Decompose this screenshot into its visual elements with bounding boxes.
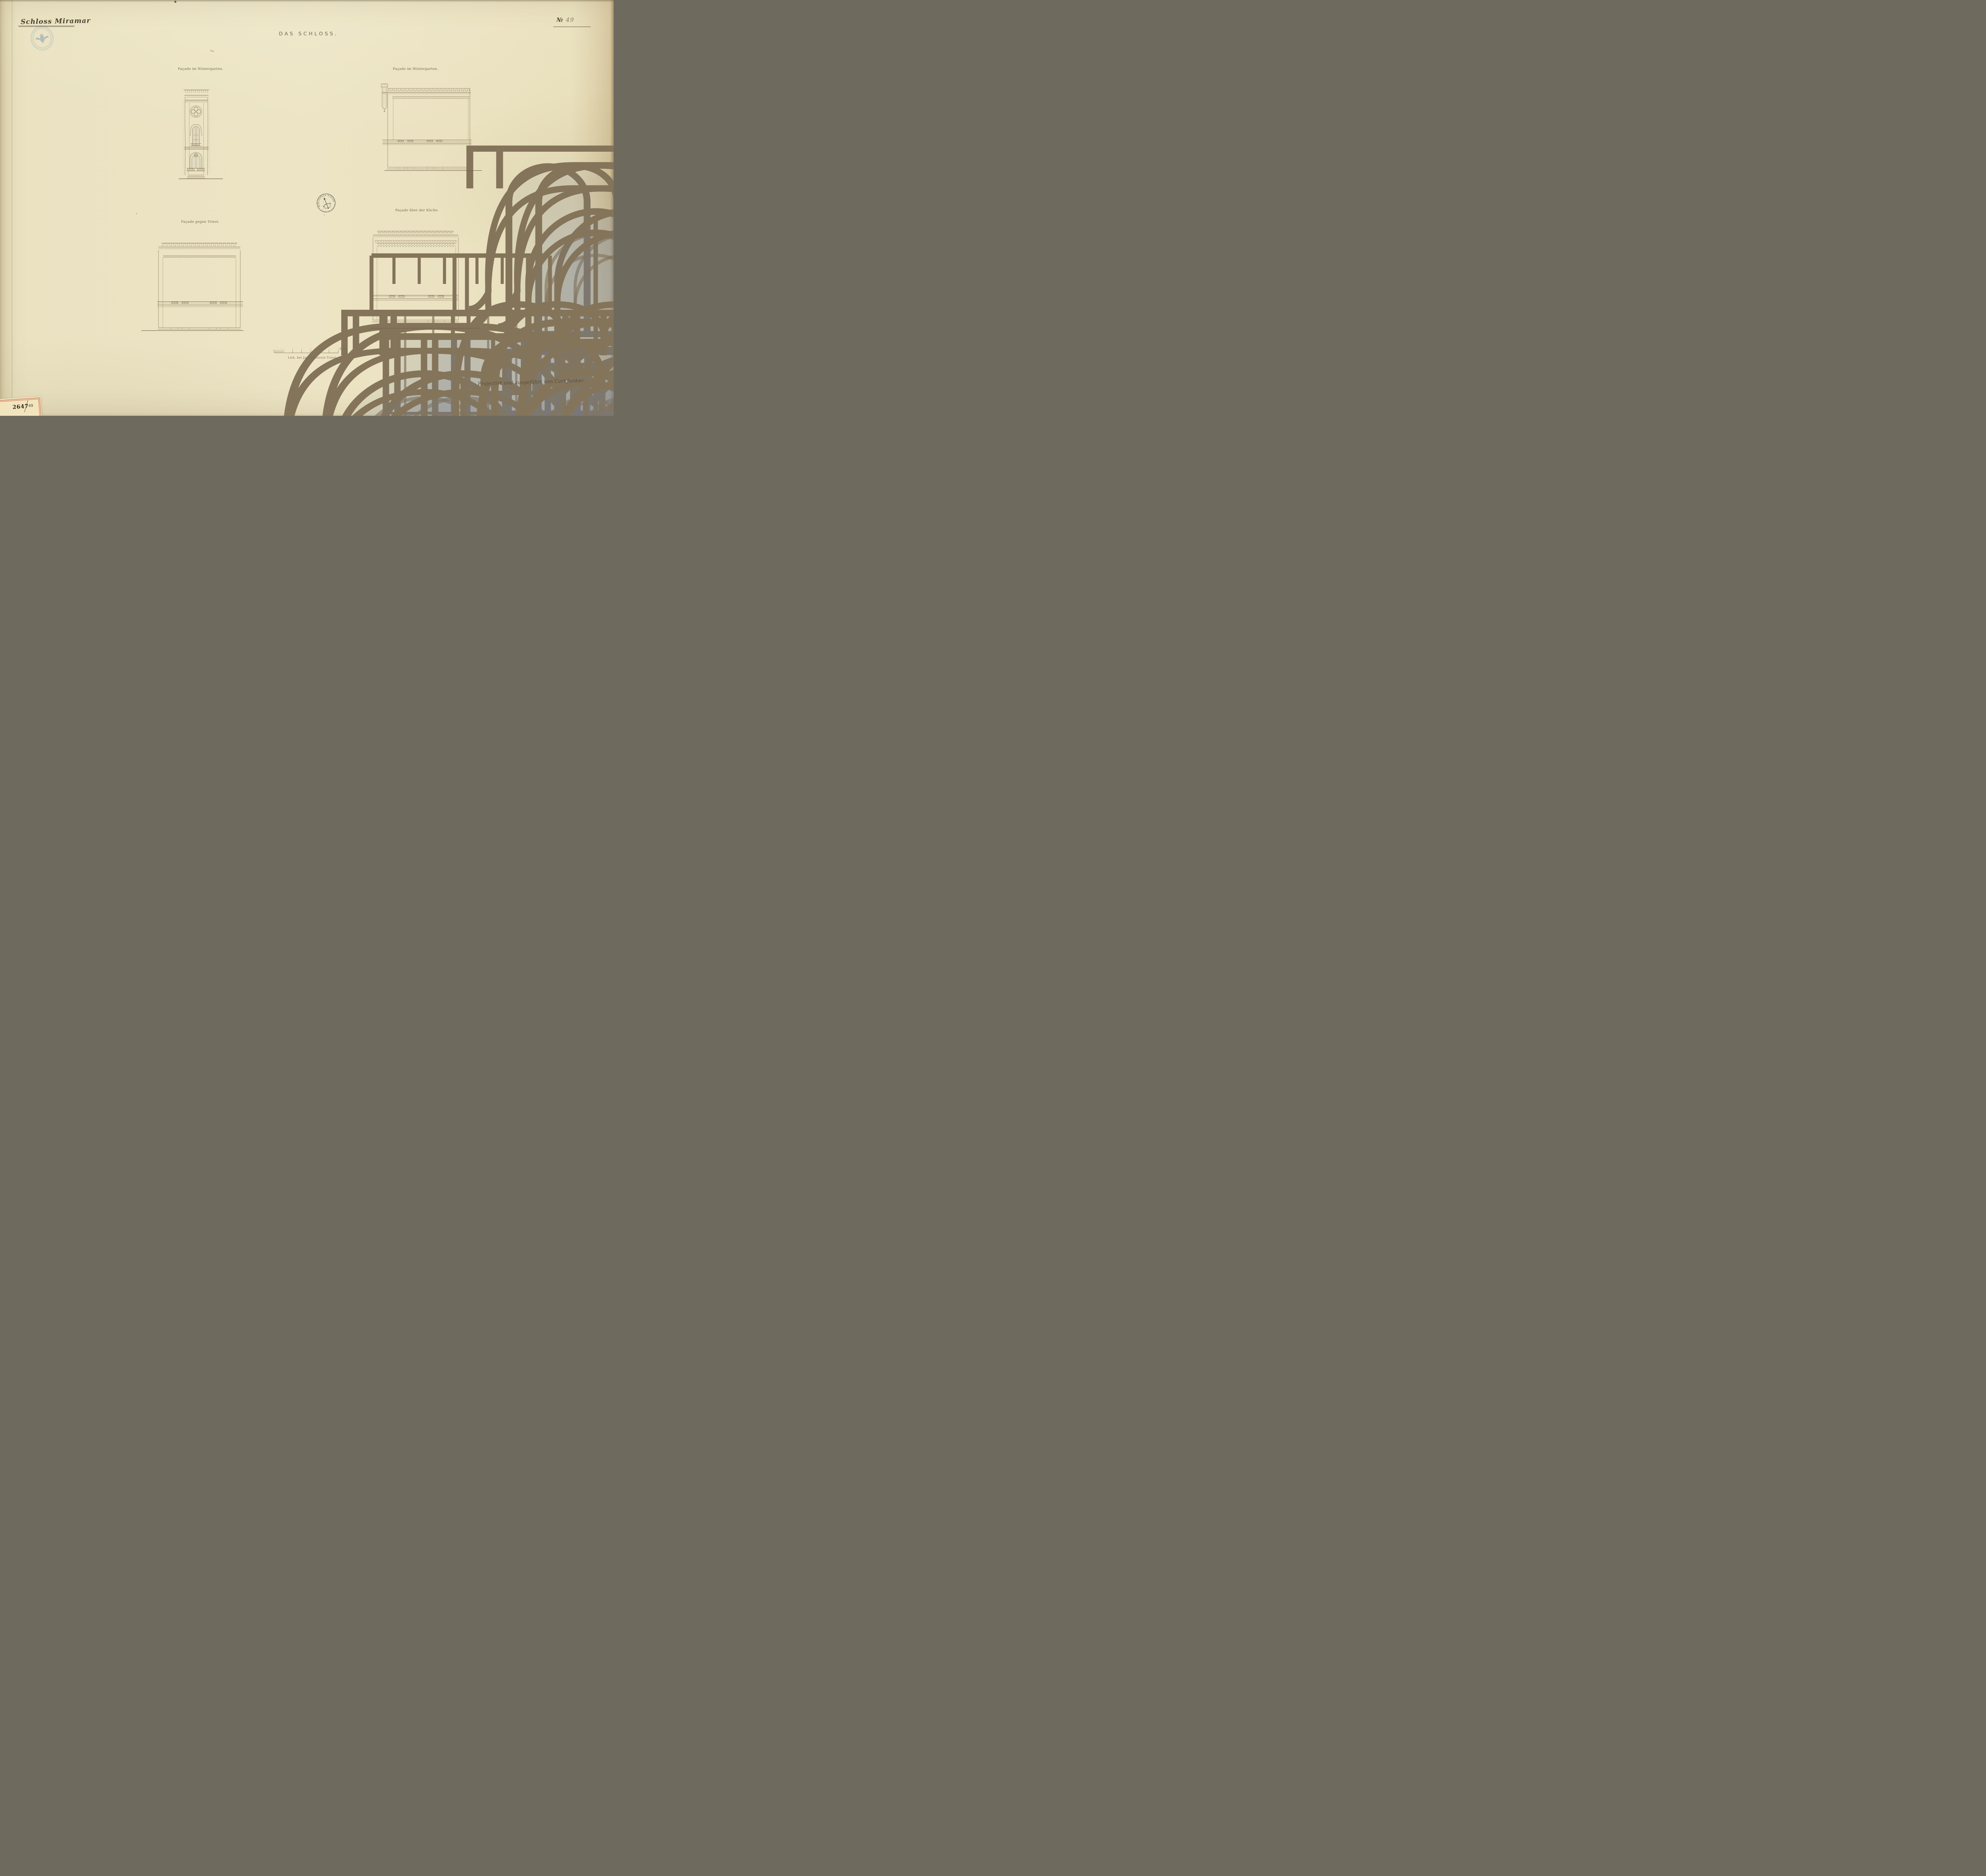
main-title: DAS SCHLOSS. bbox=[279, 31, 338, 37]
inventory-year: 49 bbox=[28, 403, 33, 408]
plate-number-underline bbox=[553, 27, 591, 27]
tower-label: Façade im Wintergarten. bbox=[178, 67, 223, 71]
drawing-sheet: BIBLIOTECA CIVICA TRIESTE bbox=[0, 0, 614, 416]
eagle-glyph bbox=[35, 33, 50, 45]
lithographer-credit: Lith. bei Jos: Matovich Triest. bbox=[288, 356, 336, 359]
triest-label: Façade gegen Triest. bbox=[181, 220, 219, 224]
scale-bar bbox=[274, 348, 339, 353]
inventory-sticker: 2647 49 bbox=[0, 396, 42, 416]
plate-number-value: 49 bbox=[566, 16, 574, 23]
kueche-label: Façade über der Küche. bbox=[395, 208, 439, 212]
tower-elevation bbox=[179, 90, 223, 179]
paper-speck bbox=[174, 1, 176, 3]
plate-number: № 49 bbox=[556, 16, 574, 23]
blue-eagle-stamp bbox=[29, 25, 55, 52]
wintergarten-label: Façade im Wintergarten. bbox=[393, 67, 438, 71]
library-stamp: BIBLIOTECA CIVICA TRIESTE bbox=[314, 191, 338, 216]
series-title: Schloss Miramar bbox=[21, 17, 91, 26]
paper-speck bbox=[136, 213, 137, 214]
svg-text:TRIESTE: TRIESTE bbox=[321, 200, 333, 211]
elevations-artwork: BIBLIOTECA CIVICA TRIESTE bbox=[0, 0, 614, 416]
scale-unit-label: W.Kl bbox=[340, 347, 347, 351]
plate-number-symbol: № bbox=[556, 16, 563, 23]
library-stamp-bottom-text: TRIESTE bbox=[321, 200, 333, 211]
series-title-underline-2 bbox=[19, 27, 74, 27]
